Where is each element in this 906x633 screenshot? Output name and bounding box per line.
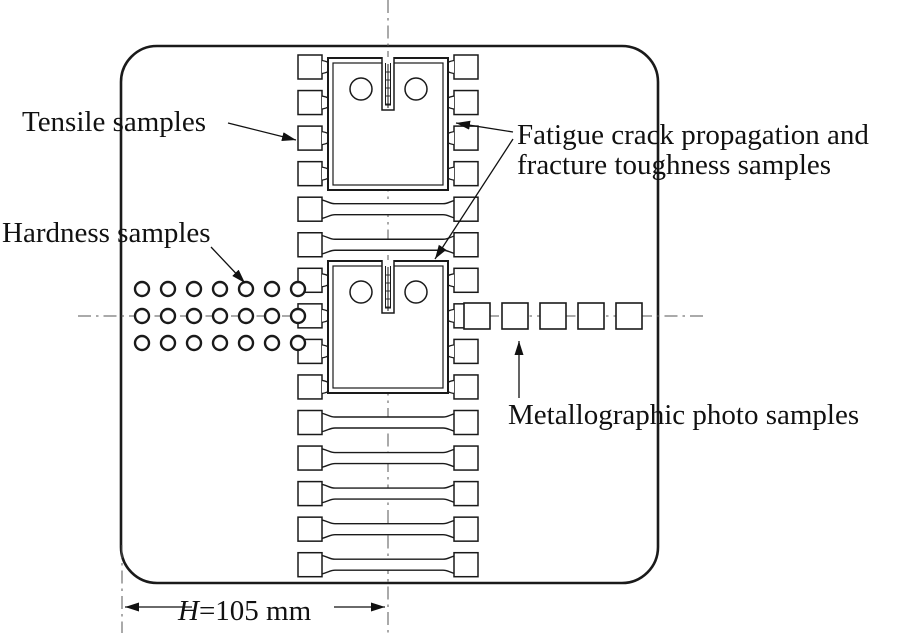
metallographic-sample [578, 303, 604, 329]
hardness-label: Hardness samples [2, 217, 211, 249]
tensile-grip-right [454, 268, 478, 292]
tensile-grip-right [454, 339, 478, 363]
metallographic-sample [464, 303, 490, 329]
tensile-grip-left [298, 197, 322, 221]
tensile-grip-right [454, 55, 478, 79]
tensile-grip-left [298, 553, 322, 577]
hardness-sample [135, 282, 149, 296]
hardness-sample [187, 309, 201, 323]
tensile-grip-right [454, 126, 478, 150]
hardness-sample [265, 309, 279, 323]
tensile-grip-right [454, 375, 478, 399]
dimension-h: H=105 mm [125, 595, 385, 627]
hardness-sample [135, 309, 149, 323]
hardness-samples-group [135, 282, 305, 350]
ct-specimen-1 [328, 57, 448, 190]
hardness-sample [265, 282, 279, 296]
tensile-grip-right [454, 482, 478, 506]
dimension-text: H=105 mm [177, 595, 312, 627]
metallographic-sample [502, 303, 528, 329]
tensile-grip-right [454, 197, 478, 221]
hardness-sample [239, 309, 253, 323]
hardness-sample [265, 336, 279, 350]
tensile-grip-left [298, 375, 322, 399]
tensile-grip-left [298, 411, 322, 435]
hardness-sample [213, 336, 227, 350]
tensile-grip-right [454, 553, 478, 577]
metallographic-sample [540, 303, 566, 329]
ct-pin-hole [350, 78, 372, 100]
tensile-grip-left [298, 162, 322, 186]
hardness-sample [213, 282, 227, 296]
hardness-sample [239, 336, 253, 350]
hardness-sample [239, 282, 253, 296]
hardness-sample [161, 336, 175, 350]
hardness-sample [291, 309, 305, 323]
tensile-grip-right [454, 517, 478, 541]
hardness-sample [135, 336, 149, 350]
diagram-canvas: Tensile samples Hardness samples Fatigue… [0, 0, 906, 633]
metallographic-samples-group [464, 303, 642, 329]
tensile-grip-left [298, 233, 322, 257]
dimension-symbol: H [177, 595, 201, 627]
tensile-grip-left [298, 482, 322, 506]
tensile-label: Tensile samples [22, 106, 206, 138]
tensile-grip-left [298, 91, 322, 115]
ct-pin-hole [350, 281, 372, 303]
hardness-sample [187, 282, 201, 296]
dimension-value: =105 mm [199, 595, 312, 627]
metallographic-label: Metallographic photo samples [508, 399, 859, 431]
fatigue-label-line2: fracture toughness samples [517, 149, 831, 181]
hardness-sample [291, 282, 305, 296]
tensile-grip-right [454, 411, 478, 435]
ct-pin-hole [405, 78, 427, 100]
tensile-grip-left [298, 517, 322, 541]
ct-pin-hole [405, 281, 427, 303]
tensile-grip-left [298, 55, 322, 79]
fatigue-label-line1: Fatigue crack propagation and [517, 119, 869, 151]
tensile-grip-left [298, 126, 322, 150]
tensile-grip-right [454, 162, 478, 186]
hardness-sample [291, 336, 305, 350]
hardness-sample [213, 309, 227, 323]
hardness-sample [161, 309, 175, 323]
tensile-grip-left [298, 446, 322, 470]
tensile-grip-right [454, 91, 478, 115]
tensile-grip-right [454, 446, 478, 470]
ct-specimen-2 [328, 260, 448, 393]
sample-cutting-diagram: Tensile samples Hardness samples Fatigue… [0, 0, 906, 633]
metallographic-sample [616, 303, 642, 329]
hardness-sample [187, 336, 201, 350]
hardness-sample [161, 282, 175, 296]
tensile-grip-right [454, 233, 478, 257]
